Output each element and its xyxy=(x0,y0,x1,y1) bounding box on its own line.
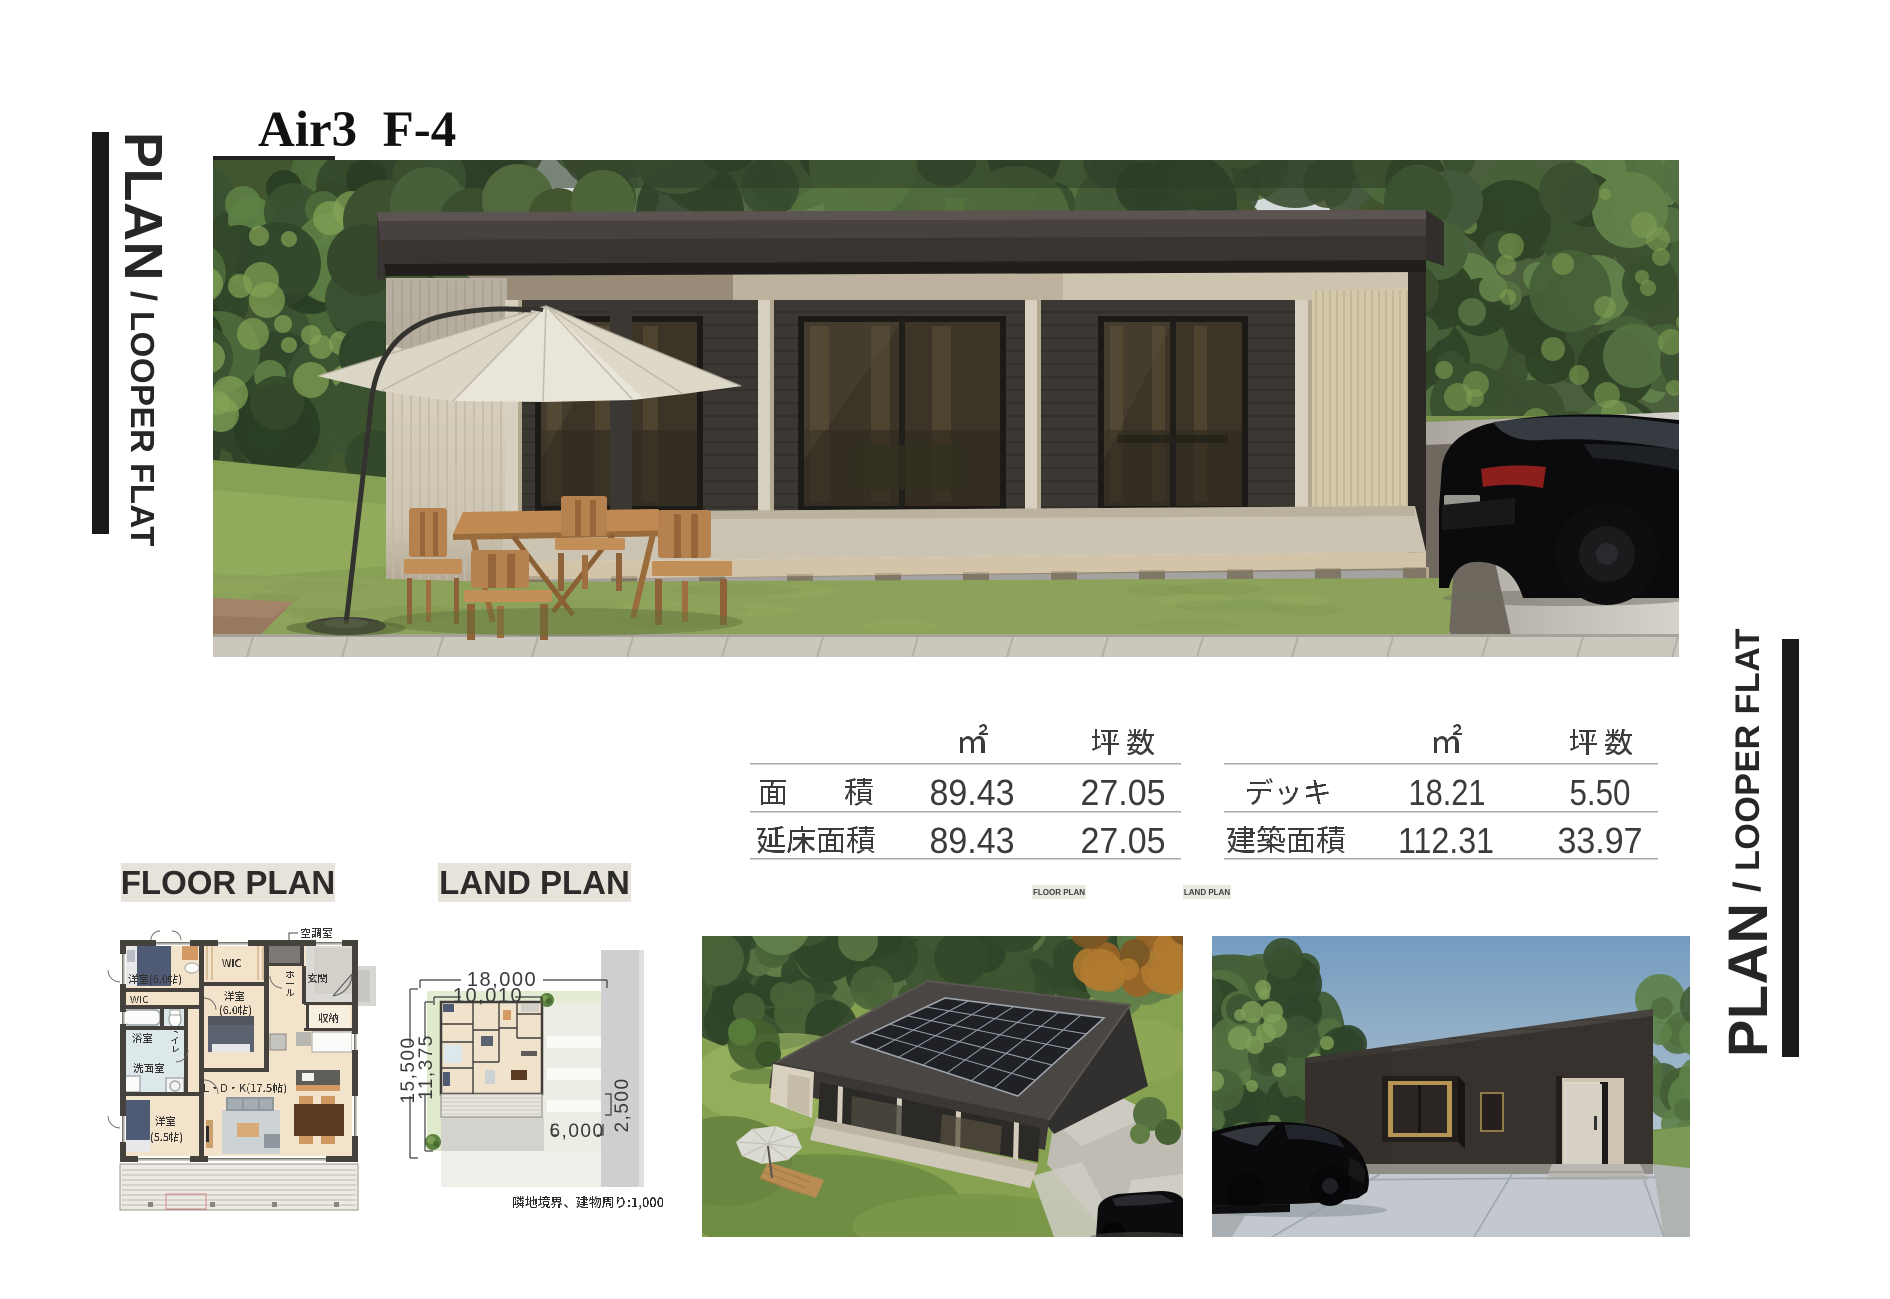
svg-text:27.05: 27.05 xyxy=(1081,820,1166,861)
svg-text:89.43: 89.43 xyxy=(930,772,1015,813)
svg-text:2,500: 2,500 xyxy=(612,1077,633,1132)
svg-text:112.31: 112.31 xyxy=(1398,820,1494,861)
svg-text:10,010: 10,010 xyxy=(453,985,523,1007)
svg-text:33.97: 33.97 xyxy=(1558,820,1643,861)
svg-text:89.43: 89.43 xyxy=(930,820,1015,861)
svg-text:6,000: 6,000 xyxy=(549,1121,604,1142)
svg-text:27.05: 27.05 xyxy=(1081,772,1166,813)
svg-text:18.21: 18.21 xyxy=(1409,772,1486,813)
svg-text:5.50: 5.50 xyxy=(1570,772,1631,813)
svg-text:11,375: 11,375 xyxy=(416,1034,437,1100)
